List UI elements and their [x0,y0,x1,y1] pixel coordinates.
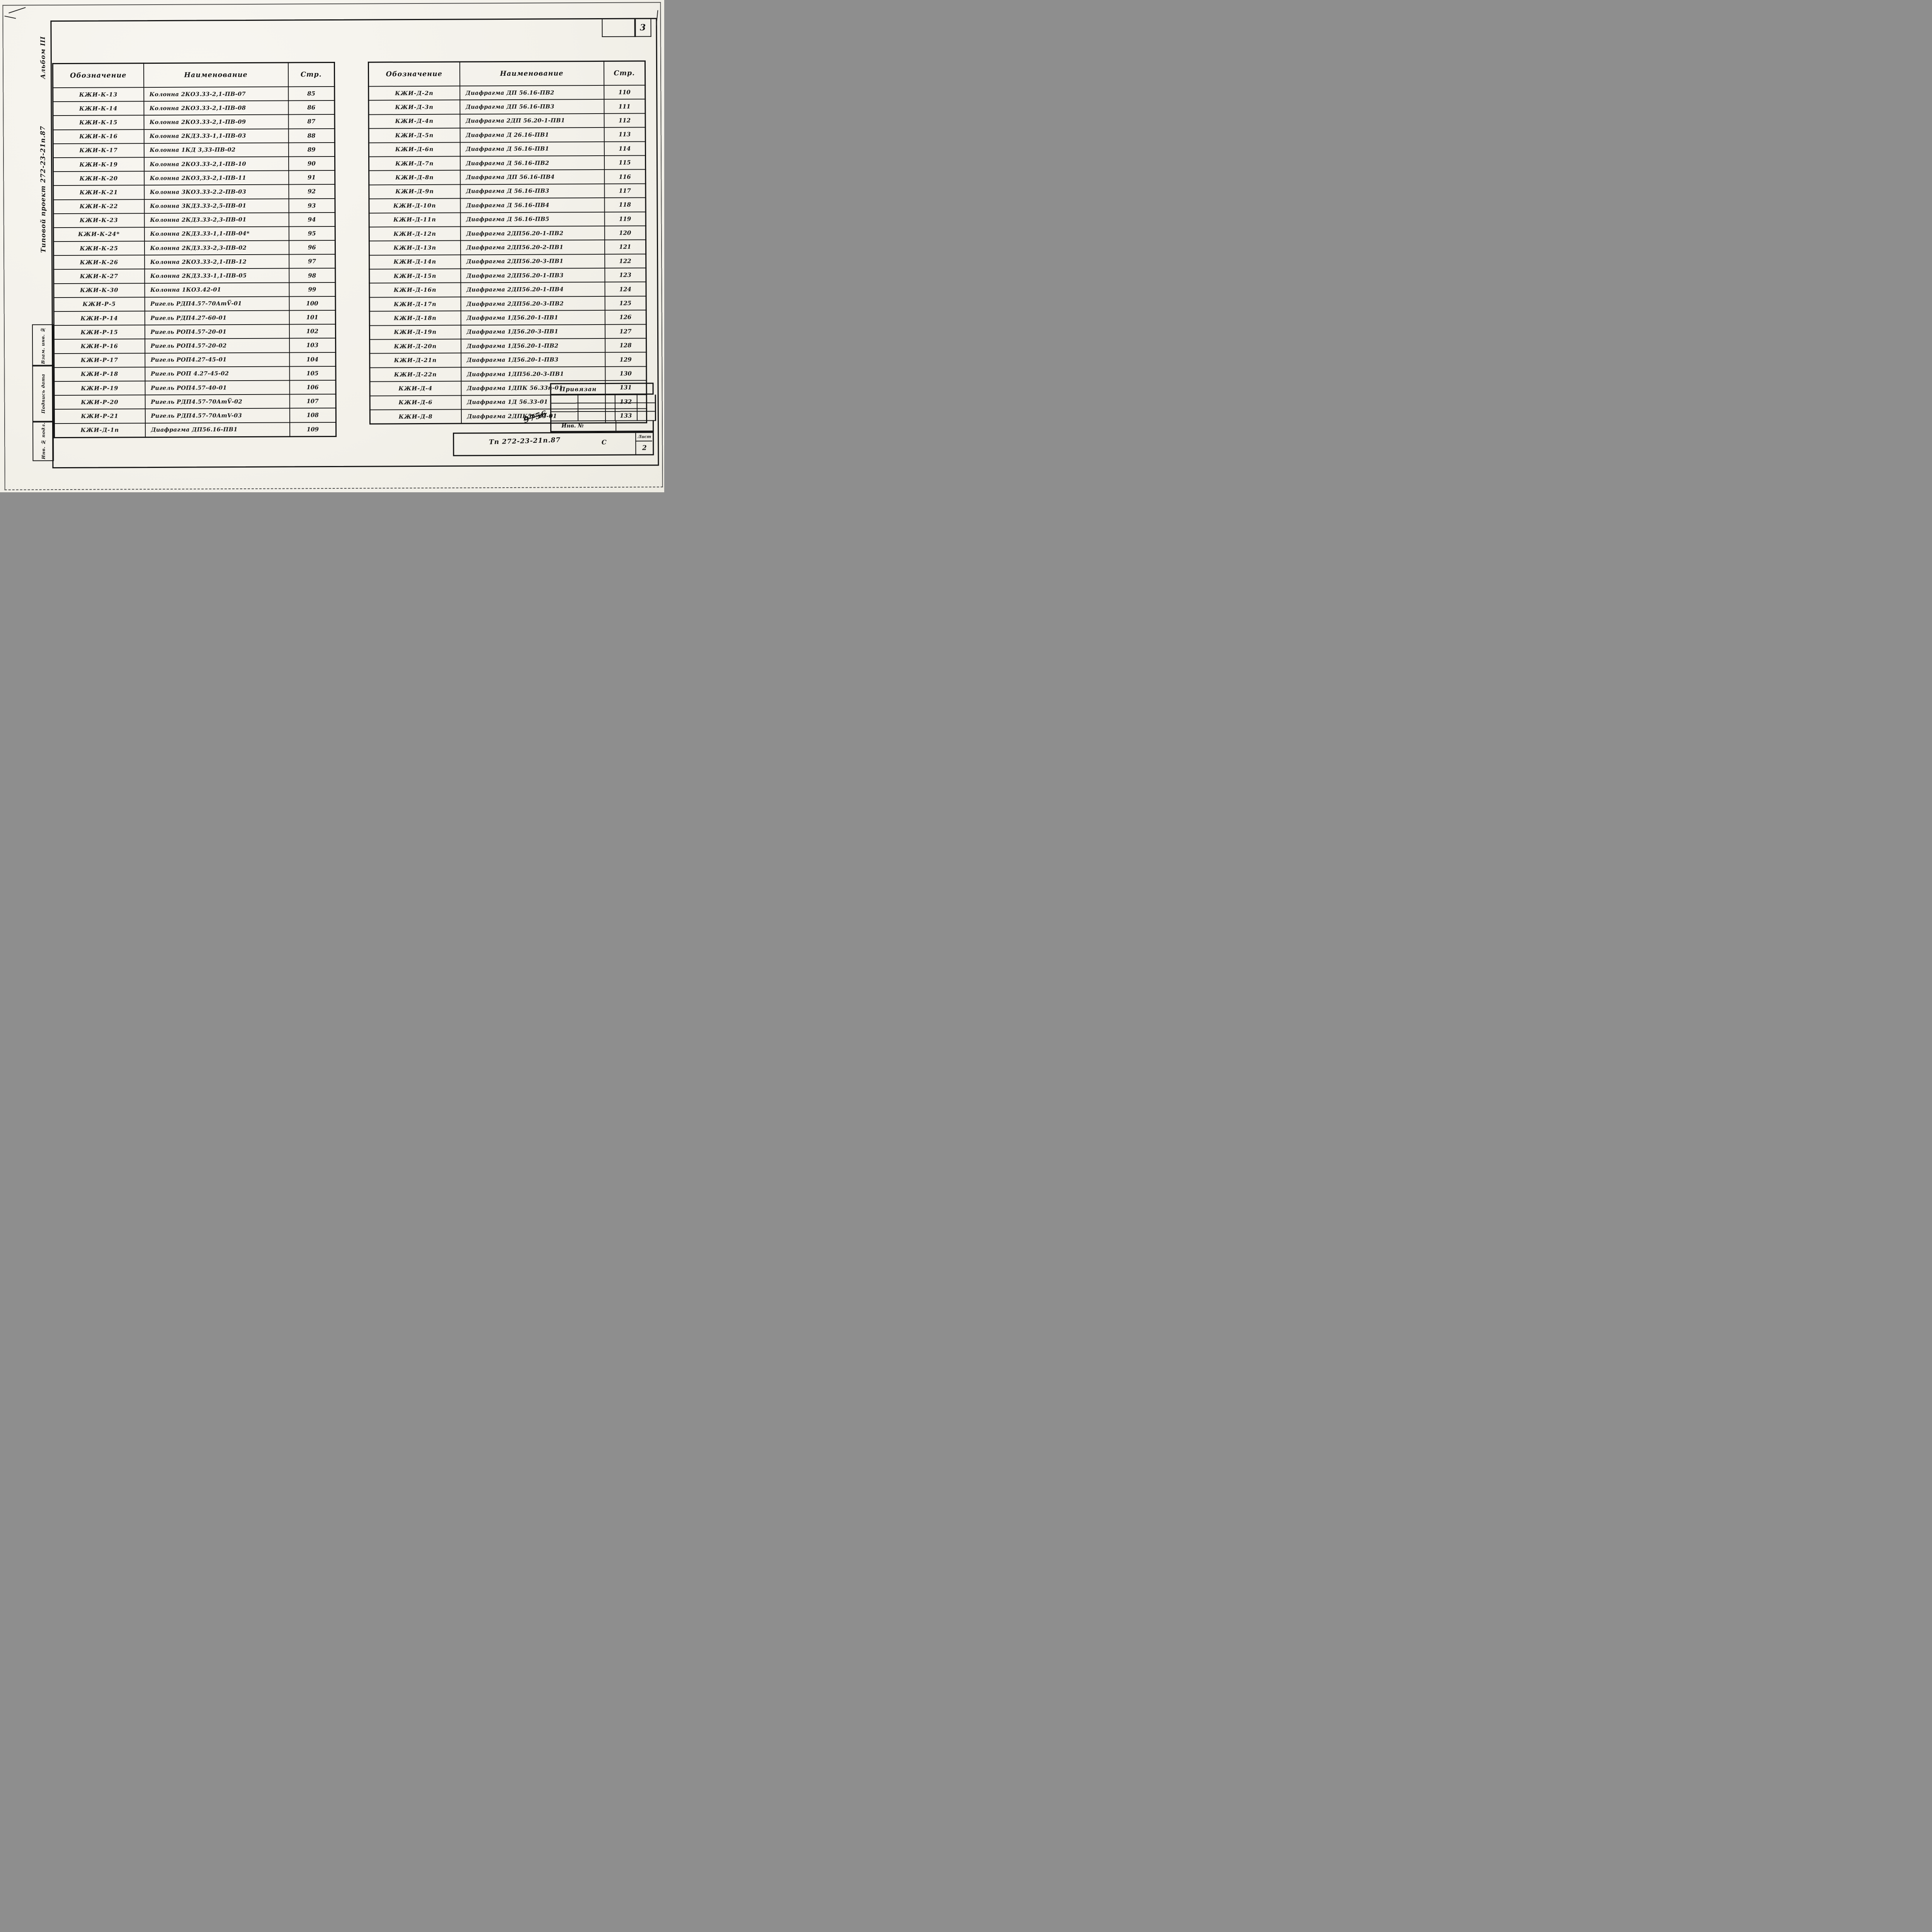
index-table-left: Обозначение Наименование Стр. КЖИ-К-13Ко… [52,62,337,438]
row-page: 111 [604,99,645,114]
grid-line [616,420,616,431]
column-header-designation: Обозначение [53,63,143,88]
table-row: КЖИ-Р-19Ригель РОП4.57-40-01106 [54,380,336,395]
row-designation: КЖИ-К-22 [53,199,144,214]
scan-content: 3 Альбом III Типовой проект 272-23-21п.8… [0,0,664,492]
row-page: 118 [604,198,646,212]
title-block-grid [550,395,656,421]
row-name: Диафрагма Д 26.16-ПВ1 [460,128,604,142]
table-row: КЖИ-Р-16Ригель РОП4.57-20-02103 [54,338,336,353]
grid-line [637,395,638,420]
sheet-number-box: 3 [634,19,651,37]
table-row: КЖИ-Д-2пДиафрагма ДП 56.16-ПВ2110 [369,85,645,100]
row-designation: КЖИ-Д-19п [369,325,461,339]
row-designation: КЖИ-К-23 [53,213,144,228]
row-page: 101 [289,310,335,325]
table-row: КЖИ-Д-9пДиафрагма Д 56.16-ПВ3117 [369,184,646,199]
row-designation: КЖИ-К-27 [54,269,145,284]
row-name: Диафрагма Д 56.16-ПВ5 [460,212,604,226]
row-page: 95 [289,226,335,241]
row-name: Диафрагма 2ДП 56.20-1-ПВ1 [460,114,604,128]
table-row: КЖИ-Д-19пДиафрагма 1Д56.20-3-ПВ1127 [369,324,646,340]
row-designation: КЖИ-Д-18п [369,311,461,325]
row-designation: КЖИ-Р-21 [54,409,145,423]
row-name: Диафрагма 2ДП56.20-1-ПВ3 [461,268,605,283]
row-name: Ригель РДП4.57-70АтV-03 [145,408,289,423]
margin-project-label: Типовой проект 272-23-21п.87 [34,117,52,261]
row-page: 103 [289,338,336,352]
index-table-right: Обозначение Наименование Стр. КЖИ-Д-2пДи… [368,60,647,425]
row-designation: КЖИ-Р-5 [54,297,145,311]
row-page: 98 [289,268,335,282]
table-row: КЖИ-Д-4пДиафрагма 2ДП 56.20-1-ПВ1112 [369,113,645,129]
row-designation: КЖИ-Р-14 [54,311,145,325]
row-designation: КЖИ-Р-16 [54,339,145,353]
row-designation: КЖИ-Д-15п [369,269,461,283]
table-row: КЖИ-Р-18Ригель РОП 4.27-45-02105 [54,366,336,381]
sheet-label: Лист [636,433,653,441]
row-name: Колонна 2КО3.33-2,1-ПВ-09 [144,115,288,129]
sheet-number-cell: Лист 2 [635,433,653,454]
row-designation: КЖИ-Р-17 [54,353,145,367]
row-page: 87 [288,114,335,129]
row-name: Колонна 1КО3.42-01 [145,282,289,297]
row-page: 106 [289,380,336,395]
row-page: 90 [288,156,335,171]
row-page: 110 [604,85,645,99]
column-header-name: Наименование [143,63,288,87]
row-name: Диафрагма Д 56.16-ПВ2 [460,156,604,170]
row-page: 94 [289,213,335,227]
table-row: КЖИ-Д-17пДиафрагма 2ДП56.20-3-ПВ2125 [369,296,646,311]
row-name: Колонна 2КО3.33-2,1-ПВ-07 [144,87,288,101]
row-page: 100 [289,296,335,311]
stamp-label: Взам. инв. № [40,327,45,364]
row-page: 105 [289,366,336,381]
table-row: КЖИ-К-24*Колонна 2КД3.33-1,1-ПВ-04*95 [53,226,335,241]
table-row: КЖИ-Р-15Ригель РОП4.57-20-01102 [54,324,335,339]
table-row: КЖИ-К-21Колонна 3КО3.33-2.2-ПВ-0392 [53,184,335,199]
table-row: КЖИ-Д-16пДиафрагма 2ДП56.20-1-ПВ4124 [369,282,646,298]
row-designation: КЖИ-Д-3п [369,100,460,114]
row-name: Диафрагма Д 56.16-ПВ1 [460,141,604,156]
table-row: КЖИ-К-25Колонна 2КД3.33-2,3-ПВ-0296 [53,240,335,255]
row-page: 85 [288,87,335,101]
row-name: Диафрагма 1Д56.20-1-ПВ3 [461,352,605,367]
column-header-name: Наименование [459,61,604,86]
table-row: КЖИ-К-13Колонна 2КО3.33-2,1-ПВ-0785 [53,87,335,102]
row-page: 88 [288,129,335,143]
table-row: КЖИ-К-30Колонна 1КО3.42-0199 [54,282,335,298]
row-name: Диафрагма 1ДП56.20-3-ПВ1 [461,367,605,381]
table-row: КЖИ-Д-12пДиафрагма 2ДП56.20-1-ПВ2120 [369,226,646,241]
row-name: Диафрагма 1Д56.20-1-ПВ2 [461,338,605,353]
row-designation: КЖИ-Д-2п [369,86,460,100]
row-name: Ригель РОП4.57-20-02 [145,338,289,353]
row-name: Колонна 1КД 3,33-ПВ-02 [144,143,288,157]
row-designation: КЖИ-Д-4 [370,381,461,396]
row-designation: КЖИ-Д-14п [369,255,461,269]
row-page: 93 [289,198,335,213]
row-designation: КЖИ-Д-12п [369,226,460,241]
row-designation: КЖИ-К-15 [53,115,144,129]
row-name: Ригель РОП4.27-45-01 [145,352,289,367]
table-row: КЖИ-Д-10пДиафрагма Д 56.16-ПВ4118 [369,198,646,213]
row-name: Ригель РОП4.57-20-01 [145,325,289,339]
column-header-designation: Обозначение [368,62,459,87]
row-name: Ригель РДП4.57-70АтV̅-02 [145,395,289,409]
stamp-label: Инв. № подл. [40,423,46,459]
row-designation: КЖИ-К-13 [53,87,144,102]
row-designation: КЖИ-Д-13п [369,241,460,255]
row-name: Колонна 2КО3.33-2,1-ПВ-08 [144,101,288,116]
row-page: 114 [604,141,645,156]
row-name: Диафрагма 2ДП56.20-3-ПВ1 [461,254,605,269]
row-name: Колонна 2КО3.33-2,1-ПВ-10 [144,156,288,171]
row-designation: КЖИ-Д-21п [370,353,461,367]
column-header-page: Стр. [288,62,334,87]
sheet-number-top: 3 [640,22,646,32]
table-row: КЖИ-Д-8пДиафрагма ДП 56.16-ПВ4116 [369,170,646,185]
table-row: КЖИ-К-14Колонна 2КО3.33-2,1-ПВ-0886 [53,100,335,116]
table-row: КЖИ-Д-11пДиафрагма Д 56.16-ПВ5119 [369,212,646,227]
row-page: 108 [289,408,336,422]
row-designation: КЖИ-Д-5п [369,128,460,143]
row-page: 130 [605,366,646,381]
column-header-page: Стр. [604,61,645,85]
row-name: Колонна 2КО3,33-2,1-ПВ-11 [144,171,289,185]
row-designation: КЖИ-Д-10п [369,199,460,213]
row-designation: КЖИ-К-21 [53,185,144,199]
row-name: Колонна 3КО3.33-2.2-ПВ-03 [144,185,289,199]
stamp-box-vzam-inv: Взам. инв. № [32,324,53,366]
row-designation: КЖИ-К-14 [53,101,144,116]
status-text: Привязан [560,386,597,393]
table-row: КЖИ-Д-13пДиафрагма 2ДП56.20-2-ПВ1121 [369,240,646,255]
row-page: 102 [289,324,335,338]
grid-line [615,395,616,420]
row-designation: КЖИ-Р-19 [54,381,145,395]
row-page: 91 [289,170,335,185]
row-designation: КЖИ-Д-20п [370,339,461,354]
row-designation: КЖИ-Д-1п [54,423,145,438]
row-designation: КЖИ-Д-8п [369,170,460,185]
table-row: КЖИ-К-26Колонна 2КО3.33-2,1-ПВ-1297 [54,254,335,269]
row-name: Колонна 2КО3.33-2,1-ПВ-12 [145,255,289,269]
row-name: Ригель РДП4.27-60-01 [145,310,289,325]
row-page: 104 [289,352,336,367]
row-designation: КЖИ-К-24* [53,227,144,241]
row-page: 86 [288,100,335,115]
row-designation: КЖИ-К-25 [53,241,144,255]
row-page: 116 [604,170,646,184]
margin-album-label: Альбом III [35,27,51,88]
row-designation: КЖИ-Д-9п [369,184,460,199]
row-designation: КЖИ-Д-16п [369,283,461,297]
row-page: 119 [604,212,646,226]
row-designation: КЖИ-Р-18 [54,367,145,381]
row-designation: КЖИ-К-26 [54,255,145,269]
row-page: 122 [605,254,646,268]
row-name: Ригель РОП4.57-40-01 [145,380,289,395]
row-designation: КЖИ-К-16 [53,129,144,144]
table-row: КЖИ-Д-1пДиафрагма ДП56.16-ПВ1109 [54,422,336,437]
table-row: КЖИ-К-15Колонна 2КО3.33-2,1-ПВ-0987 [53,114,335,129]
row-designation: КЖИ-Р-20 [54,395,145,409]
scanned-sheet: 3 Альбом III Типовой проект 272-23-21п.8… [0,0,664,492]
table-row: КЖИ-Д-14пДиафрагма 2ДП56.20-3-ПВ1122 [369,254,646,269]
table-row: КЖИ-Д-6пДиафрагма Д 56.16-ПВ1114 [369,141,645,157]
row-page: 109 [289,422,336,436]
row-name: Диафрагма ДП 56.16-ПВ3 [460,99,604,114]
row-page: 120 [604,226,646,240]
document-number: Тп 272-23-21п.87 [461,435,588,447]
row-page: 121 [604,240,646,254]
row-designation: КЖИ-Д-6 [370,395,461,410]
table-row: КЖИ-К-27Колонна 2КД3.33-1,1-ПВ-0598 [54,268,335,283]
row-page: 96 [289,240,335,255]
row-page: 117 [604,184,646,198]
row-page: 123 [605,268,646,282]
stamp-label: Подпись дата [40,374,46,413]
row-designation: КЖИ-Д-22п [370,367,461,381]
row-page: 112 [604,113,645,128]
table-row: КЖИ-Д-7пДиафрагма Д 56.16-ПВ2115 [369,155,645,171]
row-designation: КЖИ-Д-8 [370,410,461,424]
table-row: КЖИ-Д-3пДиафрагма ДП 56.16-ПВ3111 [369,99,645,115]
row-name: Диафрагма 1Д56.20-3-ПВ1 [461,325,605,339]
table-row: КЖИ-К-16Колонна 2КД3.33-1,1-ПВ-0388 [53,129,335,144]
row-designation: КЖИ-Д-11п [369,213,460,227]
row-name: Диафрагма Д 56.16-ПВ3 [460,184,604,199]
row-name: Диафрагма ДП 56.16-ПВ4 [460,170,604,184]
table-row: КЖИ-Р-5Ригель РДП4.57-70АтV̅-01100 [54,296,335,311]
row-name: Колонна 2КД3.33-1,1-ПВ-03 [144,129,288,143]
row-name: Колонна 3КД3.33-2,5-ПВ-01 [144,199,289,213]
row-page: 97 [289,254,335,269]
table-row: КЖИ-Д-20пДиафрагма 1Д56.20-1-ПВ2128 [370,338,646,354]
corner-empty-cell [602,19,636,37]
row-name: Диафрагма 2ДП56.20-2-ПВ1 [460,240,604,255]
row-name: Диафрагма 2ДП56.20-1-ПВ4 [461,282,605,297]
row-name: Колонна 2КД3.33-2,3-ПВ-01 [144,213,289,227]
table-header-row: Обозначение Наименование Стр. [368,61,645,87]
table-row: КЖИ-Р-17Ригель РОП4.27-45-01104 [54,352,336,367]
row-name: Колонна 2КД3.33-1,1-ПВ-05 [145,269,289,283]
row-designation: КЖИ-Д-4п [369,114,460,128]
table-row: КЖИ-Д-22пДиафрагма 1ДП56.20-3-ПВ1130 [370,366,646,382]
row-page: 128 [605,338,646,352]
table-row: КЖИ-Р-14Ригель РДП4.27-60-01101 [54,310,335,325]
row-name: Колонна 2КД3.33-1,1-ПВ-04* [144,226,289,241]
title-block-inv-row: Инв. № [550,420,654,432]
row-page: 124 [605,282,646,296]
row-name: Колонна 2КД3.33-2,3-ПВ-02 [144,241,289,255]
table-row: КЖИ-Д-15пДиафрагма 2ДП56.20-1-ПВ3123 [369,268,646,284]
table-row: КЖИ-К-17Колонна 1КД 3,33-ПВ-0289 [53,143,335,158]
title-block-status-cell: Привязан [550,383,654,395]
row-name: Ригель РДП4.57-70АтV̅-01 [145,296,289,311]
row-designation: КЖИ-К-19 [53,157,144,172]
stage-letter: С [596,439,612,446]
row-designation: КЖИ-К-30 [54,283,145,298]
stamp-box-podpis-data: Подпись дата [32,365,54,422]
row-page: 92 [289,184,335,199]
table-row: КЖИ-К-23Колонна 2КД3.33-2,3-ПВ-0194 [53,213,335,228]
row-designation: КЖИ-Д-6п [369,142,460,156]
row-page: 113 [604,128,645,142]
table-row: КЖИ-Р-21Ригель РДП4.57-70АтV-03108 [54,408,336,423]
row-designation: КЖИ-Д-7п [369,156,460,171]
row-name: Диафрагма ДП56.16-ПВ1 [145,422,289,437]
row-name: Ригель РОП 4.27-45-02 [145,366,289,381]
row-page: 99 [289,282,335,297]
row-page: 125 [605,296,646,310]
table-header-row: Обозначение Наименование Стр. [53,62,334,88]
sheet-number-bottom: 2 [636,441,653,454]
row-name: Диафрагма 1Д56.20-1-ПВ1 [461,310,605,325]
row-page: 89 [288,143,335,157]
stamp-box-inv-podl: Инв. № подл. [32,421,54,461]
row-name: Диафрагма 2ДП56.20-3-ПВ2 [461,296,605,311]
row-page: 127 [605,324,646,338]
table-row: КЖИ-Д-18пДиафрагма 1Д56.20-1-ПВ1126 [369,310,646,326]
row-designation: КЖИ-Д-17п [369,297,461,311]
row-name: Диафрагма Д 56.16-ПВ4 [460,198,604,213]
row-page: 107 [289,394,336,408]
row-designation: КЖИ-Р-15 [54,325,145,339]
table-row: КЖИ-К-19Колонна 2КО3.33-2,1-ПВ-1090 [53,156,335,172]
row-name: Диафрагма ДП 56.16-ПВ2 [460,85,604,100]
table-row: КЖИ-К-22Колонна 3КД3.33-2,5-ПВ-0193 [53,198,335,213]
row-name: Диафрагма 2ДП56.20-1-ПВ2 [460,226,604,241]
table-row: КЖИ-Д-5пДиафрагма Д 26.16-ПВ1113 [369,128,645,143]
row-designation: КЖИ-К-17 [53,143,144,158]
row-page: 115 [604,155,645,170]
inv-label: Инв. № [561,423,584,429]
table-row: КЖИ-Р-20Ригель РДП4.57-70АтV̅-02107 [54,394,336,409]
row-page: 126 [605,310,646,325]
row-page: 129 [605,352,646,367]
row-designation: КЖИ-К-20 [53,171,144,185]
grid-line [578,395,578,420]
title-block-bottom-row: Тп 272-23-21п.87 С Лист 2 [453,432,654,456]
table-row: КЖИ-Д-21пДиафрагма 1Д56.20-1-ПВ3129 [370,352,646,368]
table-row: КЖИ-К-20Колонна 2КО3,33-2,1-ПВ-1191 [53,170,335,185]
